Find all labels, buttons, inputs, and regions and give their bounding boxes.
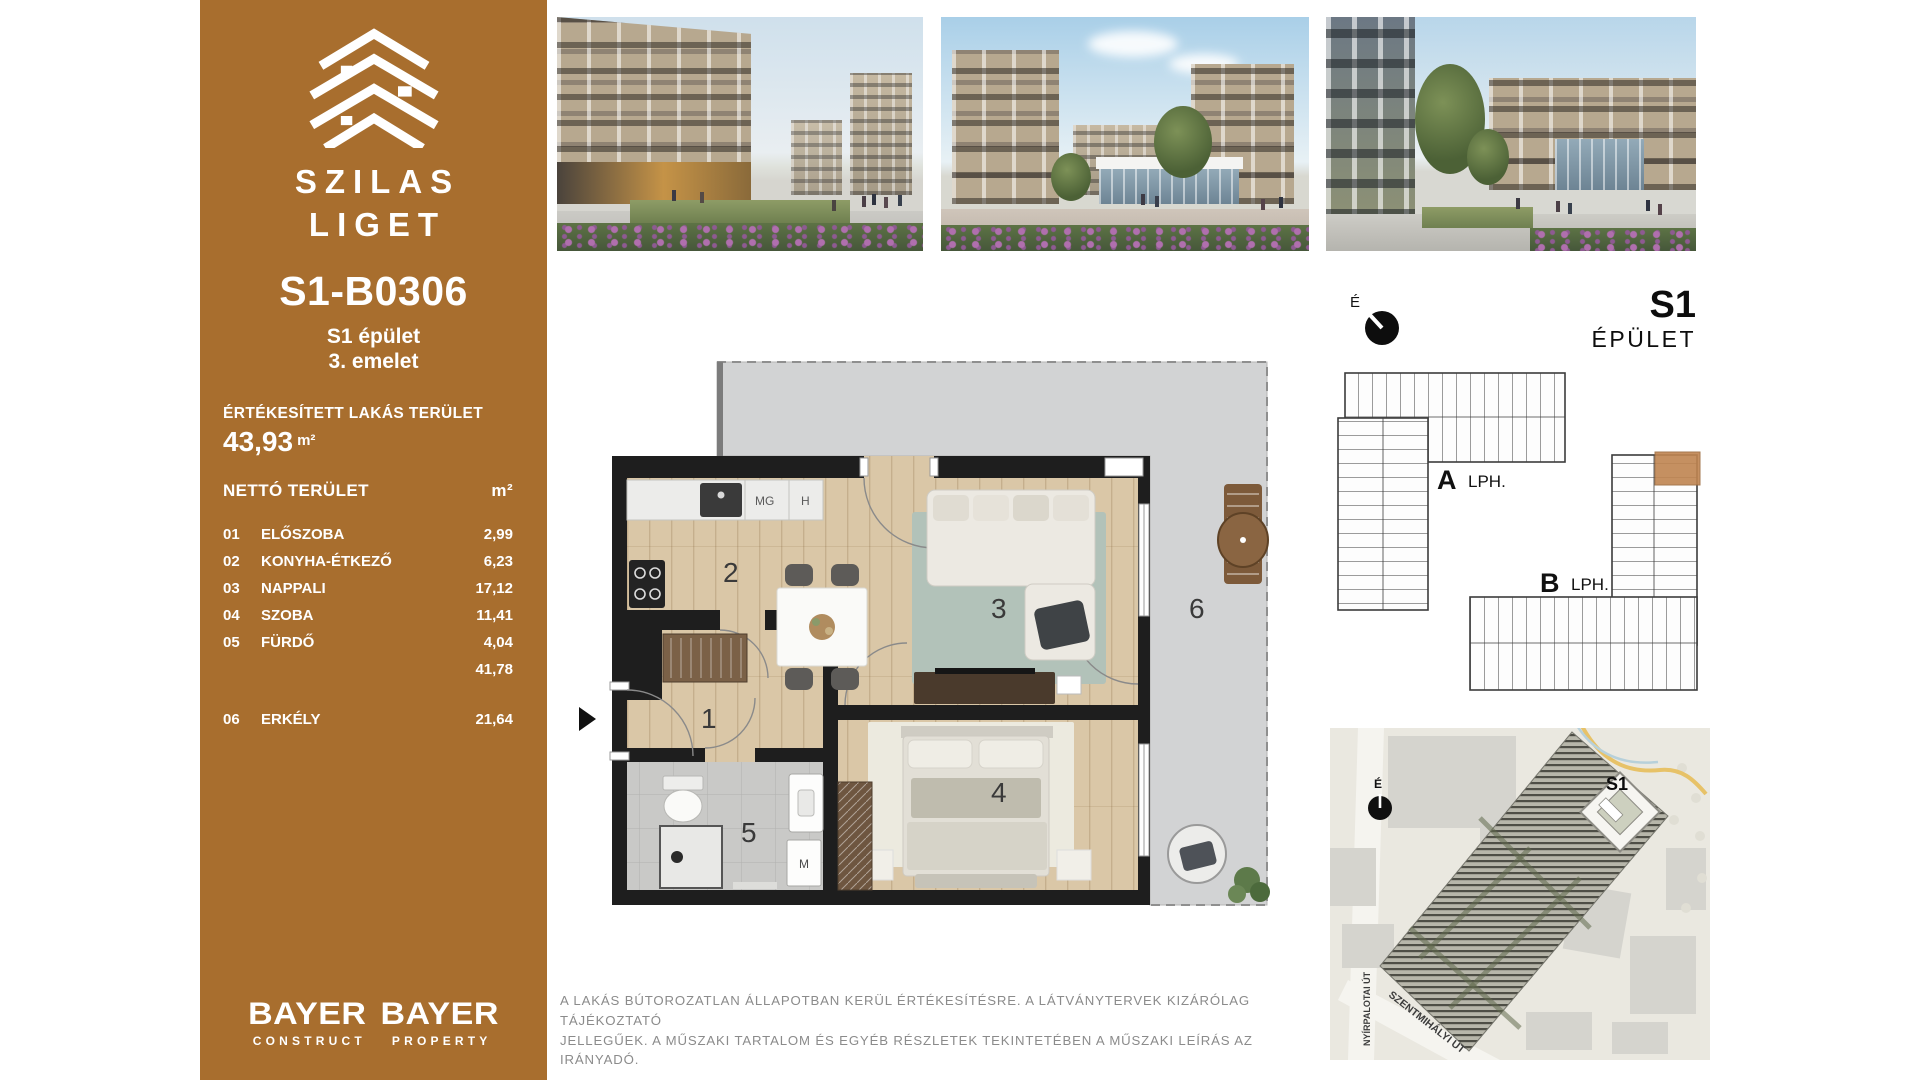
roof-chevrons-icon (299, 20, 449, 148)
unit-location: S1 épület 3. emelet (200, 325, 547, 375)
sidebar: SZILAS LIGET S1-B0306 S1 épület 3. emele… (200, 0, 547, 1080)
glass-pavilion (1099, 169, 1239, 204)
sold-area-label: ÉRTÉKESÍTETT LAKÁS TERÜLET (223, 405, 523, 423)
row-name: ERKÉLY (261, 711, 475, 728)
subtotal-value: 41,78 (475, 661, 513, 678)
row-name: FÜRDŐ (261, 634, 484, 651)
s1-map-label: S1 (1606, 774, 1628, 794)
row-area: 6,23 (484, 553, 513, 570)
building-overview-plan: A LPH. B LPH. (1330, 365, 1710, 695)
appliance-label-mg: MG (755, 494, 774, 508)
entrance-arrow-icon (579, 707, 596, 731)
net-area-label: NETTÓ TERÜLET (223, 481, 369, 501)
table-row: 04 SZOBA 11,41 (223, 602, 513, 629)
table-row: 01 ELŐSZOBA 2,99 (223, 521, 513, 548)
lawn (1422, 207, 1533, 228)
room-number-bath: 5 (741, 817, 757, 848)
bedroom-wardrobe (838, 782, 872, 890)
stair-a-type: LPH. (1468, 472, 1506, 491)
room-number-hall: 1 (701, 703, 717, 734)
stair-b-label: B (1540, 568, 1560, 598)
appliance-label-m: M (799, 857, 809, 871)
row-num: 01 (223, 526, 261, 543)
unit-building: S1 épület (327, 325, 420, 348)
net-area-table: 01 ELŐSZOBA 2,99 02 KONYHA-ÉTKEZŐ 6,23 0… (223, 521, 513, 733)
glass-entrance (1555, 139, 1644, 190)
unit-id: S1-B0306 (200, 268, 547, 315)
developer-logos: BAYER CONSTRUCT BAYER PROPERTY (200, 997, 547, 1047)
row-area: 2,99 (484, 526, 513, 543)
people-group (1141, 194, 1145, 205)
room-number-bedroom: 4 (991, 777, 1007, 808)
room-number-kitchen: 2 (723, 557, 739, 588)
table-row: 05 FÜRDŐ 4,04 (223, 629, 513, 656)
disclaimer-line1: A LAKÁS BÚTOROZATLAN ÁLLAPOTBAN KERÜL ÉR… (560, 991, 1320, 1031)
hanging-chair (1218, 484, 1268, 584)
sold-area-value: 43,93m² (223, 426, 315, 458)
row-name: NAPPALI (261, 580, 475, 597)
row-num: 02 (223, 553, 261, 570)
row-name: SZOBA (261, 607, 476, 624)
render-photo-3 (1326, 17, 1696, 251)
compass-icon (1360, 306, 1404, 350)
row-name: ELŐSZOBA (261, 526, 484, 543)
developer-name: BAYER (248, 998, 366, 1029)
flower-bed (941, 225, 1309, 251)
render-photo-1 (557, 17, 923, 251)
balcony-side-wall (717, 362, 723, 456)
appliance-label-h: H (801, 494, 810, 508)
flower-bed (1530, 228, 1697, 251)
people-group (1516, 198, 1520, 209)
north-compass: É (1348, 294, 1404, 354)
szilas-liget-logo (200, 20, 547, 153)
people-group (672, 190, 676, 201)
room-number-living: 3 (991, 593, 1007, 624)
net-area-unit-header: m² (491, 481, 513, 501)
flower-bed (557, 223, 923, 251)
hall-wardrobe (663, 634, 747, 682)
row-num: 03 (223, 580, 261, 597)
row-num: 05 (223, 634, 261, 651)
subtotal-row: 41,78 (223, 656, 513, 683)
row-area: 17,12 (475, 580, 513, 597)
building-title: S1 ÉPÜLET (1500, 286, 1696, 353)
building-type: ÉPÜLET (1500, 326, 1696, 353)
unit-floor: 3. emelet (329, 350, 419, 373)
tree (1051, 153, 1091, 201)
balcony-row: 06 ERKÉLY 21,64 (223, 706, 513, 733)
tree (1154, 106, 1212, 178)
net-area-header: NETTÓ TERÜLET m² (223, 481, 513, 501)
render-photo-2 (941, 17, 1309, 251)
street-name-vertical: NYÍRPALOTAI ÚT (1361, 971, 1372, 1046)
row-area: 21,64 (475, 711, 513, 728)
row-num: 04 (223, 607, 261, 624)
row-num: 06 (223, 711, 261, 728)
stair-b-type: LPH. (1571, 575, 1609, 594)
unit-highlight (1655, 452, 1700, 485)
brand-name-line2: LIGET (200, 206, 547, 244)
building-name: S1 (1500, 286, 1696, 324)
cloud (1088, 31, 1178, 57)
map-north-label: É (1374, 776, 1382, 791)
sold-area-number: 43,93 (223, 426, 293, 457)
bayer-property-logo: BAYER PROPERTY (381, 997, 499, 1047)
building-base (557, 162, 751, 204)
developer-name: BAYER (381, 998, 499, 1029)
brand-name-line1: SZILAS (200, 163, 547, 201)
stair-a-label: A (1437, 465, 1457, 495)
background-tower (850, 73, 912, 195)
left-facade (1326, 17, 1415, 218)
table-row: 02 KONYHA-ÉTKEZŐ 6,23 (223, 548, 513, 575)
sold-area-unit: m² (297, 432, 315, 449)
row-name: KONYHA-ÉTKEZŐ (261, 553, 484, 570)
floor-plan: MG H (605, 352, 1280, 922)
tree (1467, 129, 1509, 185)
row-area: 11,41 (476, 607, 513, 624)
bayer-construct-logo: BAYER CONSTRUCT (248, 997, 366, 1047)
developer-division: CONSTRUCT (248, 1035, 366, 1047)
lawn (630, 200, 850, 223)
site-map: S1 É NYÍRPALOTAI ÚT SZENTMIHÁLYI ÚT (1330, 728, 1710, 1060)
background-midrise (791, 120, 842, 195)
row-area: 4,04 (484, 634, 513, 651)
table-row: 03 NAPPALI 17,12 (223, 575, 513, 602)
developer-division: PROPERTY (381, 1035, 499, 1047)
disclaimer-line2: JELLEGŰEK. A MŰSZAKI TARTALOM ÉS EGYÉB R… (560, 1031, 1320, 1071)
room-number-balcony: 6 (1189, 593, 1205, 624)
left-tower (952, 50, 1059, 204)
north-label: É (1350, 294, 1360, 311)
balcony-chair (1168, 825, 1226, 883)
brochure-page: SZILAS LIGET S1-B0306 S1 épület 3. emele… (0, 0, 1920, 1080)
disclaimer-text: A LAKÁS BÚTOROZATLAN ÁLLAPOTBAN KERÜL ÉR… (560, 991, 1320, 1070)
